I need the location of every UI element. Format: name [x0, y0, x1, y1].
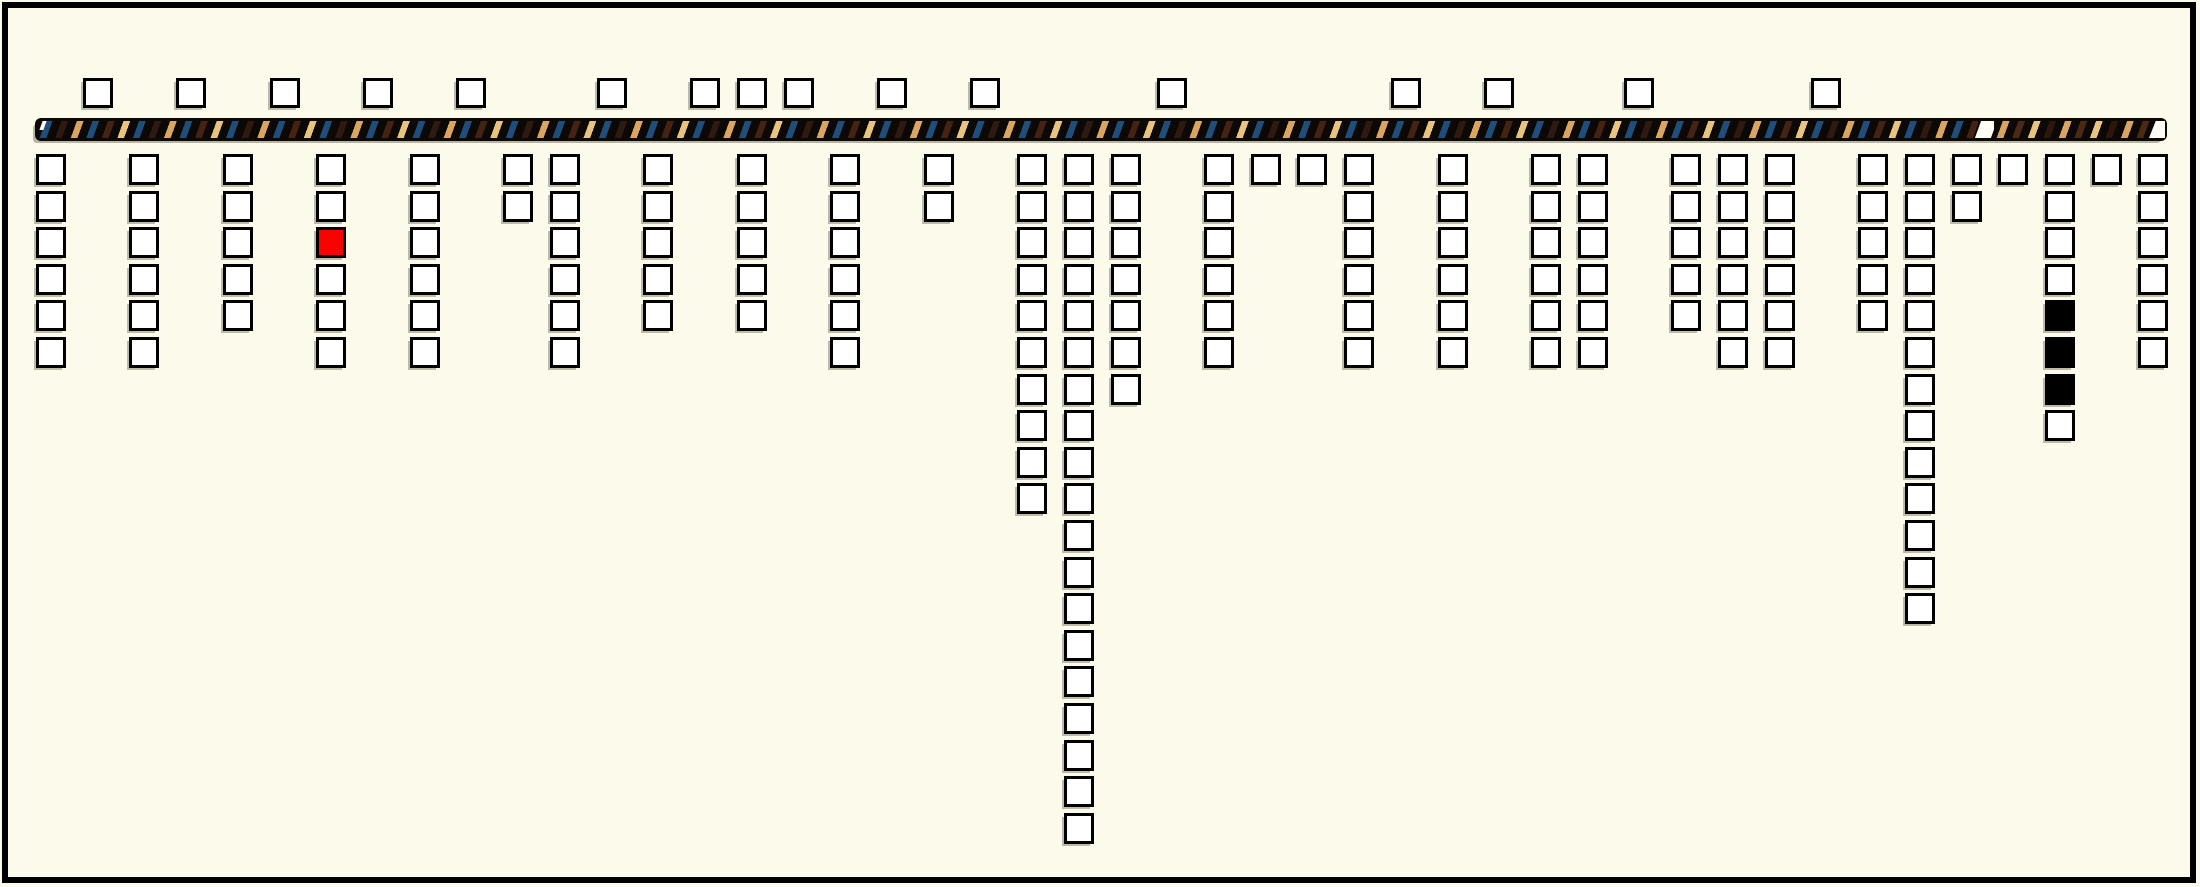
cell-square-slot-37-row-4[interactable]	[1765, 264, 1795, 295]
cell-square-slot-2-row-3[interactable]	[129, 227, 159, 258]
cell-square-slot-6-row-2[interactable]	[316, 191, 346, 222]
cell-square-slot-40-row-7[interactable]	[1905, 374, 1935, 405]
cell-square-slot-42-row-1[interactable]	[1998, 154, 2028, 185]
cell-square-slot-32-row-4[interactable]	[1531, 264, 1561, 295]
cell-square-slot-30-row-6[interactable]	[1438, 337, 1468, 368]
cell-square-slot-43-row-4[interactable]	[2045, 264, 2075, 295]
cell-square-slot-37-row-1[interactable]	[1765, 154, 1795, 185]
cell-square-slot-40-row-11[interactable]	[1905, 520, 1935, 551]
cell-square-slot-19-row-2[interactable]	[924, 191, 954, 222]
cell-square-slot-22-row-6[interactable]	[1064, 337, 1094, 368]
top-square-slot-3[interactable]	[176, 78, 206, 108]
striped-band	[35, 118, 2167, 141]
cell-square-slot-39-row-1[interactable]	[1858, 154, 1888, 185]
cell-square-slot-22-row-10[interactable]	[1064, 483, 1094, 514]
cell-square-slot-11-row-2[interactable]	[550, 191, 580, 222]
cell-square-slot-37-row-6[interactable]	[1765, 337, 1795, 368]
top-square-slot-7[interactable]	[363, 78, 393, 108]
cell-square-slot-25-row-1[interactable]	[1204, 154, 1234, 185]
cell-square-slot-36-row-6[interactable]	[1718, 337, 1748, 368]
cell-square-slot-22-row-3[interactable]	[1064, 227, 1094, 258]
cell-square-slot-21-row-5[interactable]	[1017, 300, 1047, 331]
top-square-slot-31[interactable]	[1484, 78, 1514, 108]
black-square-slot-43-row-7[interactable]	[2045, 374, 2075, 405]
cell-square-slot-30-row-5[interactable]	[1438, 300, 1468, 331]
cell-square-slot-0-row-1[interactable]	[36, 154, 66, 185]
cell-square-slot-45-row-5[interactable]	[2138, 300, 2168, 331]
top-square-slot-16[interactable]	[784, 78, 814, 108]
top-square-slot-20[interactable]	[970, 78, 1000, 108]
cell-square-slot-36-row-3[interactable]	[1718, 227, 1748, 258]
cell-square-slot-4-row-4[interactable]	[223, 264, 253, 295]
cell-square-slot-2-row-4[interactable]	[129, 264, 159, 295]
cell-square-slot-32-row-1[interactable]	[1531, 154, 1561, 185]
cell-square-slot-33-row-6[interactable]	[1578, 337, 1608, 368]
cell-square-slot-6-row-4[interactable]	[316, 264, 346, 295]
cell-square-slot-36-row-1[interactable]	[1718, 154, 1748, 185]
cell-square-slot-4-row-5[interactable]	[223, 300, 253, 331]
cell-square-slot-45-row-1[interactable]	[2138, 154, 2168, 185]
red-square-slot-6-row-3[interactable]	[316, 227, 346, 258]
cell-square-slot-22-row-2[interactable]	[1064, 191, 1094, 222]
cell-square-slot-0-row-2[interactable]	[36, 191, 66, 222]
cell-square-slot-37-row-3[interactable]	[1765, 227, 1795, 258]
cell-square-slot-45-row-2[interactable]	[2138, 191, 2168, 222]
cell-square-slot-13-row-5[interactable]	[643, 300, 673, 331]
band-end-white-wedge	[2149, 121, 2165, 138]
cell-square-slot-25-row-6[interactable]	[1204, 337, 1234, 368]
cell-square-slot-41-row-2[interactable]	[1952, 191, 1982, 222]
cell-square-slot-21-row-7[interactable]	[1017, 374, 1047, 405]
cell-square-slot-40-row-8[interactable]	[1905, 410, 1935, 441]
black-square-slot-43-row-5[interactable]	[2045, 300, 2075, 331]
cell-square-slot-22-row-11[interactable]	[1064, 520, 1094, 551]
cell-square-slot-25-row-2[interactable]	[1204, 191, 1234, 222]
cell-square-slot-30-row-1[interactable]	[1438, 154, 1468, 185]
cell-square-slot-2-row-2[interactable]	[129, 191, 159, 222]
cell-square-slot-8-row-1[interactable]	[410, 154, 440, 185]
cell-square-slot-10-row-1[interactable]	[503, 154, 533, 185]
top-square-slot-1[interactable]	[83, 78, 113, 108]
cell-square-slot-8-row-6[interactable]	[410, 337, 440, 368]
cell-square-slot-26-row-1[interactable]	[1251, 154, 1281, 185]
cell-square-slot-27-row-1[interactable]	[1297, 154, 1327, 185]
black-square-slot-43-row-6[interactable]	[2045, 337, 2075, 368]
cell-square-slot-32-row-2[interactable]	[1531, 191, 1561, 222]
cell-square-slot-13-row-2[interactable]	[643, 191, 673, 222]
cell-square-slot-22-row-4[interactable]	[1064, 264, 1094, 295]
cell-square-slot-19-row-1[interactable]	[924, 154, 954, 185]
cell-square-slot-22-row-1[interactable]	[1064, 154, 1094, 185]
top-square-slot-38[interactable]	[1811, 78, 1841, 108]
cell-square-slot-13-row-4[interactable]	[643, 264, 673, 295]
cell-square-slot-22-row-17[interactable]	[1064, 740, 1094, 771]
cell-square-slot-36-row-2[interactable]	[1718, 191, 1748, 222]
cell-square-slot-4-row-1[interactable]	[223, 154, 253, 185]
cell-square-slot-17-row-4[interactable]	[830, 264, 860, 295]
cell-square-slot-21-row-3[interactable]	[1017, 227, 1047, 258]
cell-square-slot-28-row-2[interactable]	[1344, 191, 1374, 222]
cell-square-slot-45-row-4[interactable]	[2138, 264, 2168, 295]
cell-square-slot-44-row-1[interactable]	[2092, 154, 2122, 185]
cell-square-slot-30-row-3[interactable]	[1438, 227, 1468, 258]
cell-square-slot-4-row-2[interactable]	[223, 191, 253, 222]
cell-square-slot-15-row-5[interactable]	[737, 300, 767, 331]
cell-square-slot-33-row-4[interactable]	[1578, 264, 1608, 295]
cell-square-slot-11-row-6[interactable]	[550, 337, 580, 368]
top-square-slot-18[interactable]	[877, 78, 907, 108]
cell-square-slot-43-row-1[interactable]	[2045, 154, 2075, 185]
cell-square-slot-17-row-2[interactable]	[830, 191, 860, 222]
cell-square-slot-8-row-2[interactable]	[410, 191, 440, 222]
cell-square-slot-43-row-2[interactable]	[2045, 191, 2075, 222]
cell-square-slot-22-row-16[interactable]	[1064, 703, 1094, 734]
cell-square-slot-22-row-14[interactable]	[1064, 630, 1094, 661]
cell-square-slot-6-row-6[interactable]	[316, 337, 346, 368]
cell-square-slot-37-row-5[interactable]	[1765, 300, 1795, 331]
cell-square-slot-36-row-5[interactable]	[1718, 300, 1748, 331]
cell-square-slot-8-row-4[interactable]	[410, 264, 440, 295]
top-square-slot-29[interactable]	[1391, 78, 1421, 108]
cell-square-slot-32-row-5[interactable]	[1531, 300, 1561, 331]
cell-square-slot-39-row-3[interactable]	[1858, 227, 1888, 258]
cell-square-slot-17-row-6[interactable]	[830, 337, 860, 368]
cell-square-slot-0-row-3[interactable]	[36, 227, 66, 258]
cell-square-slot-33-row-5[interactable]	[1578, 300, 1608, 331]
cell-square-slot-37-row-2[interactable]	[1765, 191, 1795, 222]
cell-square-slot-8-row-3[interactable]	[410, 227, 440, 258]
cell-square-slot-2-row-6[interactable]	[129, 337, 159, 368]
cell-square-slot-23-row-7[interactable]	[1111, 374, 1141, 405]
cell-square-slot-33-row-2[interactable]	[1578, 191, 1608, 222]
top-square-slot-12[interactable]	[597, 78, 627, 108]
cell-square-slot-39-row-2[interactable]	[1858, 191, 1888, 222]
cell-square-slot-0-row-5[interactable]	[36, 300, 66, 331]
cell-square-slot-0-row-6[interactable]	[36, 337, 66, 368]
cell-square-slot-39-row-5[interactable]	[1858, 300, 1888, 331]
cell-square-slot-15-row-4[interactable]	[737, 264, 767, 295]
cell-square-slot-40-row-12[interactable]	[1905, 557, 1935, 588]
cell-square-slot-22-row-5[interactable]	[1064, 300, 1094, 331]
cell-square-slot-40-row-3[interactable]	[1905, 227, 1935, 258]
cell-square-slot-23-row-4[interactable]	[1111, 264, 1141, 295]
cell-square-slot-32-row-3[interactable]	[1531, 227, 1561, 258]
cell-square-slot-43-row-8[interactable]	[2045, 410, 2075, 441]
cell-square-slot-21-row-8[interactable]	[1017, 410, 1047, 441]
board	[0, 0, 2200, 887]
band-stripes-palA	[37, 121, 1978, 138]
cell-square-slot-40-row-9[interactable]	[1905, 447, 1935, 478]
cell-square-slot-17-row-1[interactable]	[830, 154, 860, 185]
cell-square-slot-15-row-2[interactable]	[737, 191, 767, 222]
cell-square-slot-23-row-5[interactable]	[1111, 300, 1141, 331]
top-square-slot-34[interactable]	[1624, 78, 1654, 108]
cell-square-slot-40-row-6[interactable]	[1905, 337, 1935, 368]
top-square-slot-9[interactable]	[456, 78, 486, 108]
cell-square-slot-25-row-3[interactable]	[1204, 227, 1234, 258]
cell-square-slot-11-row-1[interactable]	[550, 154, 580, 185]
cell-square-slot-23-row-3[interactable]	[1111, 227, 1141, 258]
cell-square-slot-40-row-5[interactable]	[1905, 300, 1935, 331]
cell-square-slot-35-row-1[interactable]	[1671, 154, 1701, 185]
cell-square-slot-22-row-7[interactable]	[1064, 374, 1094, 405]
cell-square-slot-0-row-4[interactable]	[36, 264, 66, 295]
cell-square-slot-15-row-1[interactable]	[737, 154, 767, 185]
cell-square-slot-2-row-5[interactable]	[129, 300, 159, 331]
cell-square-slot-23-row-2[interactable]	[1111, 191, 1141, 222]
cell-square-slot-22-row-8[interactable]	[1064, 410, 1094, 441]
cell-square-slot-11-row-4[interactable]	[550, 264, 580, 295]
cell-square-slot-4-row-3[interactable]	[223, 227, 253, 258]
cell-square-slot-21-row-10[interactable]	[1017, 483, 1047, 514]
cell-square-slot-30-row-2[interactable]	[1438, 191, 1468, 222]
cell-square-slot-35-row-3[interactable]	[1671, 227, 1701, 258]
cell-square-slot-28-row-1[interactable]	[1344, 154, 1374, 185]
cell-square-slot-32-row-6[interactable]	[1531, 337, 1561, 368]
cell-square-slot-28-row-5[interactable]	[1344, 300, 1374, 331]
cell-square-slot-22-row-18[interactable]	[1064, 776, 1094, 807]
cell-square-slot-23-row-6[interactable]	[1111, 337, 1141, 368]
cell-square-slot-21-row-6[interactable]	[1017, 337, 1047, 368]
cell-square-slot-2-row-1[interactable]	[129, 154, 159, 185]
top-square-slot-5[interactable]	[270, 78, 300, 108]
cell-square-slot-17-row-3[interactable]	[830, 227, 860, 258]
cell-square-slot-28-row-3[interactable]	[1344, 227, 1374, 258]
cell-square-slot-21-row-4[interactable]	[1017, 264, 1047, 295]
cell-square-slot-21-row-1[interactable]	[1017, 154, 1047, 185]
cell-square-slot-22-row-15[interactable]	[1064, 666, 1094, 697]
cell-square-slot-10-row-2[interactable]	[503, 191, 533, 222]
top-square-slot-14[interactable]	[690, 78, 720, 108]
cell-square-slot-40-row-13[interactable]	[1905, 593, 1935, 624]
cell-square-slot-39-row-4[interactable]	[1858, 264, 1888, 295]
cell-square-slot-33-row-3[interactable]	[1578, 227, 1608, 258]
cell-square-slot-40-row-1[interactable]	[1905, 154, 1935, 185]
cell-square-slot-22-row-9[interactable]	[1064, 447, 1094, 478]
band-stripes-palB	[1994, 121, 2150, 138]
cell-square-slot-15-row-3[interactable]	[737, 227, 767, 258]
cell-square-slot-45-row-3[interactable]	[2138, 227, 2168, 258]
cell-square-slot-30-row-4[interactable]	[1438, 264, 1468, 295]
cell-square-slot-40-row-10[interactable]	[1905, 483, 1935, 514]
cell-square-slot-13-row-1[interactable]	[643, 154, 673, 185]
top-square-slot-15[interactable]	[737, 78, 767, 108]
cell-square-slot-22-row-12[interactable]	[1064, 557, 1094, 588]
cell-square-slot-11-row-5[interactable]	[550, 300, 580, 331]
cell-square-slot-22-row-13[interactable]	[1064, 593, 1094, 624]
cell-square-slot-22-row-19[interactable]	[1064, 813, 1094, 844]
cell-square-slot-40-row-4[interactable]	[1905, 264, 1935, 295]
cell-square-slot-25-row-5[interactable]	[1204, 300, 1234, 331]
cell-square-slot-6-row-5[interactable]	[316, 300, 346, 331]
cell-square-slot-25-row-4[interactable]	[1204, 264, 1234, 295]
top-square-slot-24[interactable]	[1157, 78, 1187, 108]
cell-square-slot-23-row-1[interactable]	[1111, 154, 1141, 185]
cell-square-slot-35-row-2[interactable]	[1671, 191, 1701, 222]
cell-square-slot-36-row-4[interactable]	[1718, 264, 1748, 295]
cell-square-slot-17-row-5[interactable]	[830, 300, 860, 331]
cell-square-slot-8-row-5[interactable]	[410, 300, 440, 331]
cell-square-slot-11-row-3[interactable]	[550, 227, 580, 258]
cell-square-slot-35-row-4[interactable]	[1671, 264, 1701, 295]
cell-square-slot-43-row-3[interactable]	[2045, 227, 2075, 258]
cell-square-slot-28-row-6[interactable]	[1344, 337, 1374, 368]
cell-square-slot-45-row-6[interactable]	[2138, 337, 2168, 368]
cell-square-slot-35-row-5[interactable]	[1671, 300, 1701, 331]
cell-square-slot-13-row-3[interactable]	[643, 227, 673, 258]
cell-square-slot-33-row-1[interactable]	[1578, 154, 1608, 185]
cell-square-slot-40-row-2[interactable]	[1905, 191, 1935, 222]
cell-square-slot-21-row-2[interactable]	[1017, 191, 1047, 222]
cell-square-slot-28-row-4[interactable]	[1344, 264, 1374, 295]
cell-square-slot-21-row-9[interactable]	[1017, 447, 1047, 478]
cell-square-slot-41-row-1[interactable]	[1952, 154, 1982, 185]
cell-square-slot-6-row-1[interactable]	[316, 154, 346, 185]
